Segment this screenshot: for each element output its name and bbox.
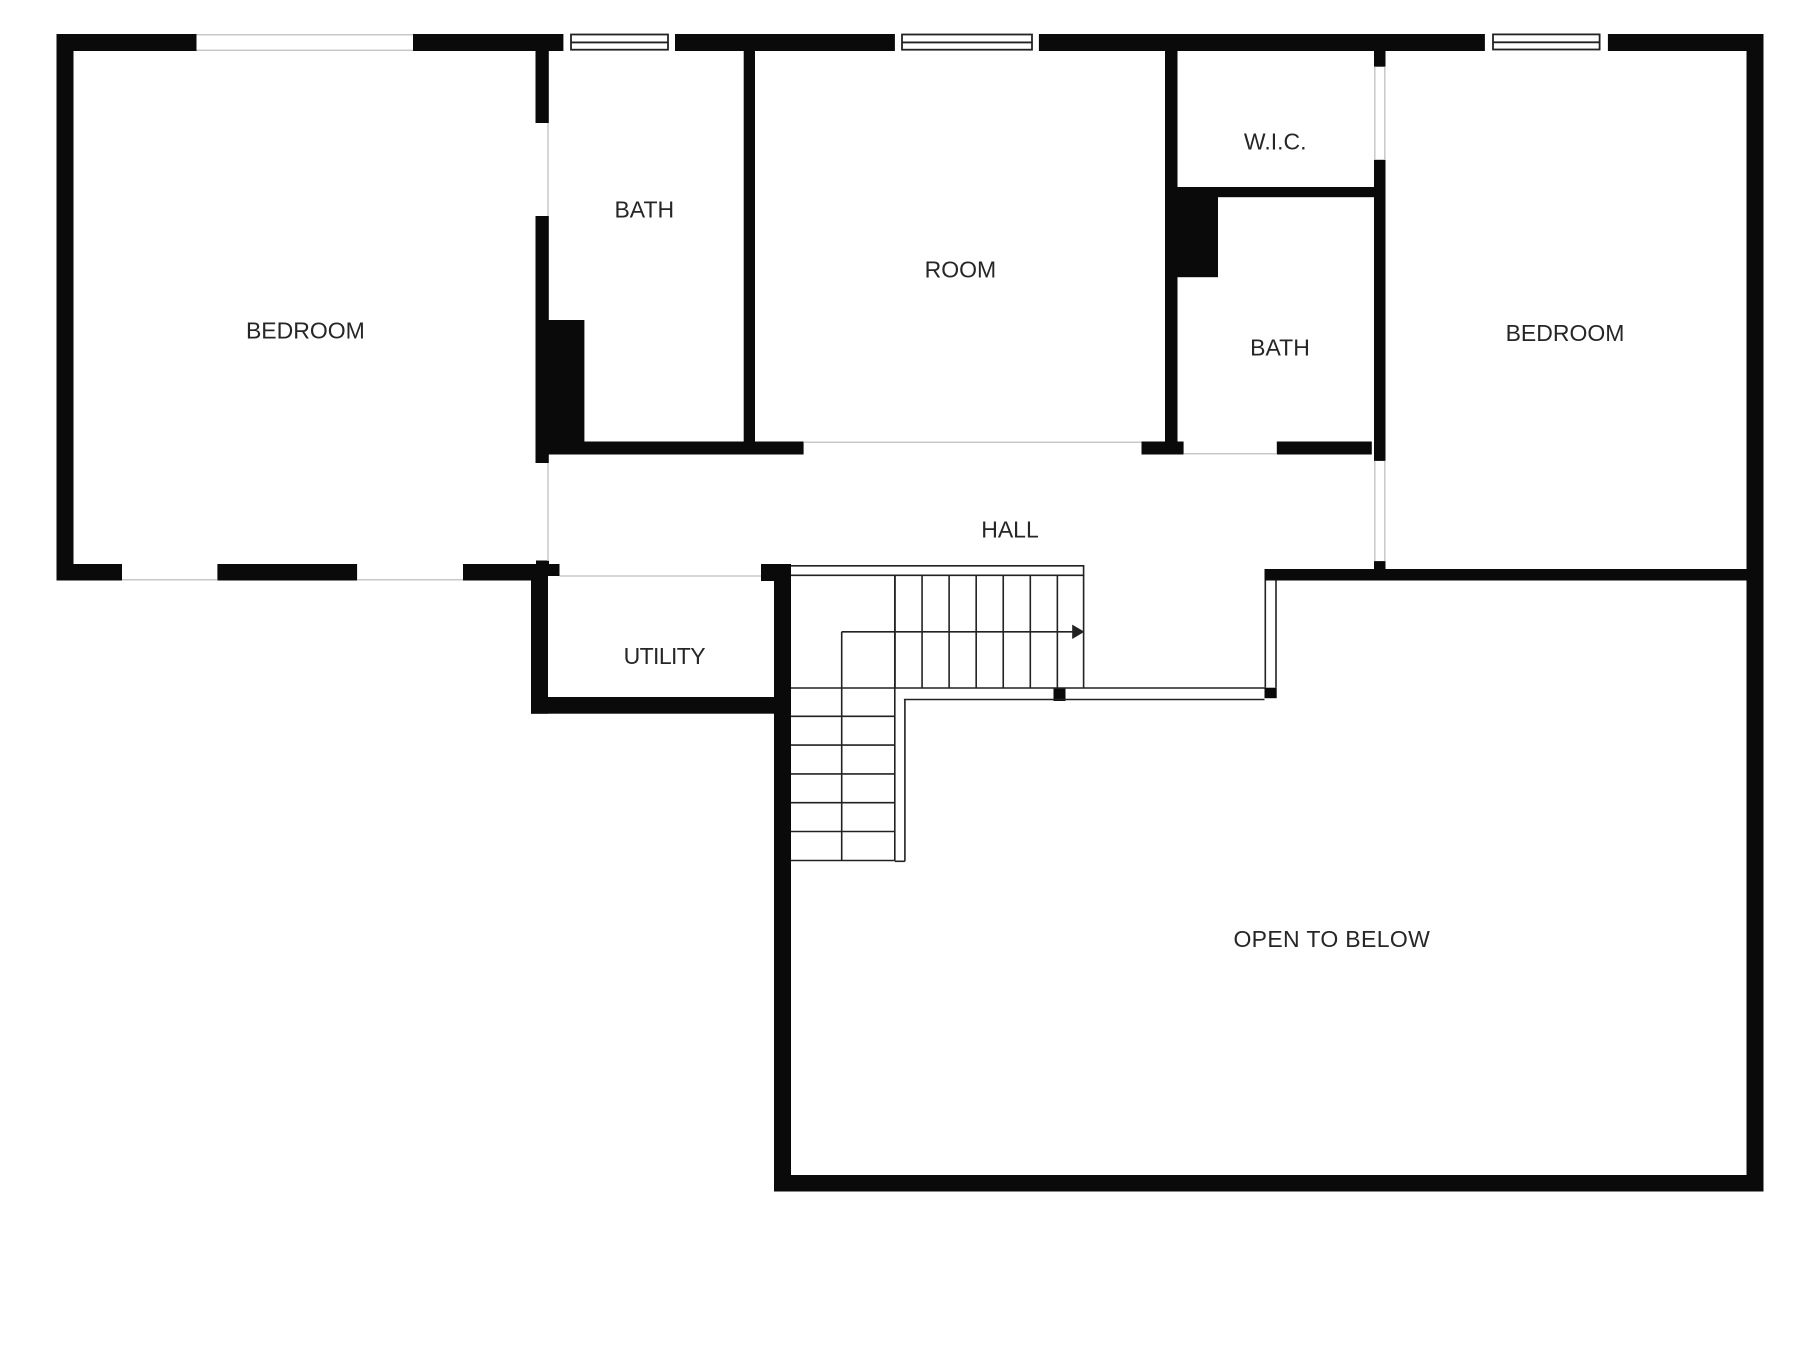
svg-text:BEDROOM: BEDROOM (1506, 320, 1625, 346)
svg-text:BATH: BATH (614, 197, 674, 223)
svg-text:W.I.C.: W.I.C. (1244, 129, 1307, 155)
svg-text:HALL: HALL (981, 516, 1039, 542)
svg-text:ROOM: ROOM (925, 256, 997, 282)
svg-text:BEDROOM: BEDROOM (246, 318, 365, 344)
svg-text:BATH: BATH (1250, 334, 1310, 360)
svg-text:UTILITY: UTILITY (624, 643, 706, 669)
svg-text:OPEN TO BELOW: OPEN TO BELOW (1233, 926, 1430, 952)
